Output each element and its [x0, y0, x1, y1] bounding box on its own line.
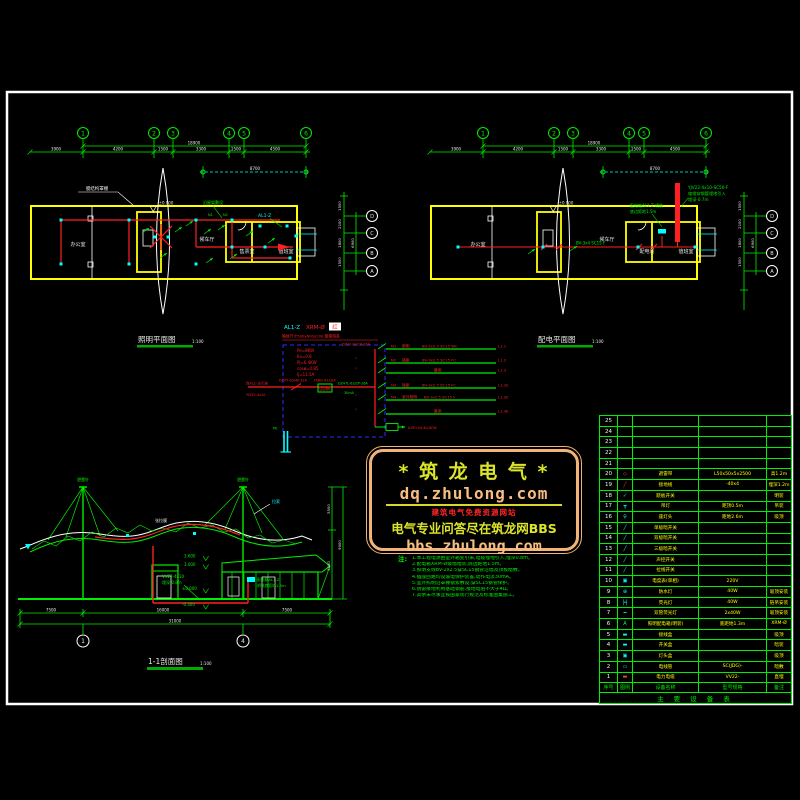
feeder-label: BV-3x4 SC15 F	[576, 241, 606, 246]
svg-text:8700: 8700	[650, 166, 661, 171]
grid-lines	[428, 139, 711, 158]
row-name: 灯头盒	[633, 651, 699, 662]
main-breaker-label: DZ47-63/4P-32A	[279, 379, 308, 383]
row-number: 18	[600, 491, 618, 502]
svg-text:4: 4	[627, 130, 631, 137]
row-name: 电线管	[633, 662, 699, 673]
row-name: 单极暗开关	[633, 523, 699, 534]
svg-text:〃: 〃	[354, 408, 357, 412]
svg-text:B: B	[370, 251, 374, 257]
svg-text:±0.000: ±0.000	[159, 201, 174, 206]
side-dimension-chain: D C B A 1500 2100 1800 1500 6900	[337, 192, 378, 310]
row-name: 接地线	[633, 480, 699, 491]
row-spec: 底距地1.3m	[699, 619, 767, 630]
svg-text:配电箱AL1-Z 明装: 配电箱AL1-Z 明装	[630, 202, 663, 208]
row-number: 2	[600, 662, 618, 673]
row-number: 11	[600, 566, 618, 577]
branch-circuit-texts: N1 照明 BV-2x2.5 SC15 WC L1.1 N2 插座 BV-3x2…	[391, 344, 509, 414]
svg-text:DZ47L-63/2P-16A: DZ47L-63/2P-16A	[338, 381, 368, 385]
panel-tag: AL1-Z	[258, 213, 271, 219]
svg-text:1: 1	[81, 638, 85, 645]
header-name: 设备名称	[633, 683, 699, 693]
row-remark: 吸顶安装	[767, 587, 791, 598]
row-remark: 吸顶	[767, 651, 791, 662]
svg-text:1500: 1500	[158, 147, 169, 152]
row-number: 16	[600, 512, 618, 523]
row-number: 4	[600, 640, 618, 651]
row-spec	[699, 651, 767, 662]
row-name: 拉线开关	[633, 566, 699, 577]
right-dimensions: 5500 3500 9000	[326, 487, 347, 599]
svg-text:候车厅: 候车厅	[199, 236, 214, 243]
svg-text:插座: 插座	[402, 383, 410, 388]
row-spec: 40W	[699, 587, 767, 598]
row-symbol-icon: ╱	[618, 566, 633, 577]
svg-text:cosø=0.85: cosø=0.85	[297, 366, 319, 371]
svg-text:BV-3x2.5 SC15 F: BV-3x2.5 SC15 F	[424, 395, 455, 400]
row-symbol-icon	[618, 416, 633, 427]
row-symbol-icon: ▣	[618, 651, 633, 662]
row-remark	[767, 566, 791, 577]
row-spec: 距地2.6m	[699, 512, 767, 523]
canopy-label: 张拉膜	[155, 517, 167, 523]
svg-text:1500: 1500	[337, 201, 342, 211]
row-number: 6	[600, 619, 618, 630]
svg-text:L1.1: L1.1	[498, 344, 507, 349]
row-remark	[767, 534, 791, 545]
row-spec	[699, 640, 767, 651]
cable-annotation: YJV22-4x10-SC50-F 电缆穿钢管埋地引入 埋深-0.7m	[687, 185, 729, 203]
svg-text:1: 1	[81, 130, 85, 137]
row-spec: 2x40W	[699, 608, 767, 619]
row-name: 双管荧光灯	[633, 608, 699, 619]
watermark-title: * 筑 龙 电 气 *	[372, 457, 576, 484]
svg-text:底边距地1.5m: 底边距地1.5m	[630, 208, 656, 214]
svg-text:9000: 9000	[337, 540, 342, 550]
svg-text:1500: 1500	[631, 147, 642, 152]
svg-text:4200: 4200	[513, 147, 524, 152]
power-plan: 1 2 3 4 5 6 3900 4200 1500 3300 1500 450…	[428, 128, 778, 348]
row-number: 22	[600, 448, 618, 459]
header-symbol: 图例	[618, 683, 633, 693]
svg-text:办公室: 办公室	[70, 241, 85, 248]
secondary-dimension: 8700	[600, 166, 708, 178]
row-symbol-icon: ▬	[618, 640, 633, 651]
watermark-subtitle: 建筑电气免费资源网站	[372, 507, 576, 518]
row-symbol-icon: ◇	[618, 469, 633, 480]
svg-text:6: 6	[304, 130, 308, 137]
row-remark: 埋深1.2m	[767, 480, 791, 491]
row-remark	[767, 437, 791, 448]
row-remark: 暗敷	[767, 662, 791, 673]
svg-text:D: D	[770, 214, 774, 220]
row-spec: 220V	[699, 576, 767, 587]
equipment-table: 25 24 23 22	[599, 415, 792, 704]
svg-text:室外照明: 室外照明	[402, 395, 417, 400]
row-number: 3	[600, 651, 618, 662]
row-number: 7	[600, 608, 618, 619]
svg-text:16000: 16000	[157, 608, 170, 613]
row-remark: 高1.2m	[767, 469, 791, 480]
row-remark	[767, 523, 791, 534]
row-symbol-icon: ━	[618, 608, 633, 619]
row-symbol-icon: ╱	[618, 480, 633, 491]
svg-text:18900: 18900	[588, 141, 601, 146]
svg-text:BV-3x2.5 SC15 FC: BV-3x2.5 SC15 FC	[422, 358, 456, 363]
plan-title: 配电平面图 1:100	[537, 334, 604, 348]
row-number: 10	[600, 576, 618, 587]
row-remark	[767, 544, 791, 555]
svg-text:7500: 7500	[282, 608, 293, 613]
room-labels: 办公室 候车厅 售票室 值班室	[70, 236, 293, 255]
svg-text:B: B	[770, 251, 774, 257]
svg-text:1500: 1500	[737, 257, 742, 267]
row-name: 荧光灯	[633, 598, 699, 609]
svg-text:配电平面图: 配电平面图	[538, 334, 576, 344]
buried-cable-note: VV22-4x10 埋深-0.8m	[162, 574, 184, 585]
svg-text:1500: 1500	[737, 201, 742, 211]
svg-text:8700: 8700	[250, 166, 261, 171]
header-remark: 备注	[767, 683, 791, 693]
svg-text:1800: 1800	[337, 238, 342, 248]
row-name: 电力电缆	[633, 673, 699, 684]
row-name	[633, 437, 699, 448]
svg-text:L1.3: L1.3	[498, 368, 507, 373]
row-name: 声控开关	[633, 555, 699, 566]
row-symbol-icon: ╞╡	[618, 598, 633, 609]
row-remark: 吸顶安装	[767, 608, 791, 619]
svg-text:5500: 5500	[326, 504, 331, 514]
row-spec	[699, 448, 767, 459]
panel-id: AL1-Z	[284, 325, 300, 331]
svg-text:N2: N2	[391, 358, 397, 363]
row-symbol-icon: ▭	[618, 662, 633, 673]
svg-text:DD86: DD86	[319, 386, 331, 391]
watermark-url-bottom: bbs.zhulong.com	[372, 537, 576, 555]
row-name: 双极暗开关	[633, 534, 699, 545]
row-name: 三极暗开关	[633, 544, 699, 555]
equipment-table-body: 25 24 23 22	[600, 416, 791, 683]
row-spec	[699, 544, 767, 555]
row-remark: 直埋	[767, 673, 791, 684]
row-spec: -40x4	[699, 480, 767, 491]
sculpture-outline	[557, 168, 570, 314]
row-symbol-icon: ▣	[618, 576, 633, 587]
panel-model: XRM-Ø	[306, 324, 325, 331]
row-spec	[699, 437, 767, 448]
row-number: 5	[600, 630, 618, 641]
svg-text:电缆穿钢管埋地引入: 电缆穿钢管埋地引入	[688, 190, 727, 197]
row-symbol-icon: ╱	[618, 544, 633, 555]
bottom-dimensions: 7500 16000 7500 31000	[18, 608, 333, 629]
meter-label: FDBo-63(3)A	[314, 379, 336, 383]
row-symbol-icon: ▬	[618, 630, 633, 641]
svg-text:备用: 备用	[434, 368, 442, 373]
svg-text:6900: 6900	[350, 238, 355, 248]
svg-text:〃: 〃	[354, 357, 357, 361]
row-number: 17	[600, 502, 618, 513]
svg-text:4500: 4500	[270, 147, 281, 152]
svg-text:7500: 7500	[46, 608, 57, 613]
svg-text:6900: 6900	[750, 238, 755, 248]
row-symbol-icon: ▬	[618, 673, 633, 684]
svg-text:L1.3E: L1.3E	[498, 409, 509, 414]
svg-text:PE: PE	[273, 426, 278, 431]
row-spec	[699, 523, 767, 534]
svg-text:Kx=0.8: Kx=0.8	[297, 354, 312, 359]
row-remark	[767, 416, 791, 427]
secondary-dimension: 8700	[200, 166, 308, 178]
row-name: 避雷带	[633, 469, 699, 480]
row-spec	[699, 459, 767, 470]
svg-text:4500: 4500	[670, 147, 681, 152]
svg-text:3500: 3500	[326, 561, 331, 571]
svg-text:配电箱AL1-Z: 配电箱AL1-Z	[257, 577, 280, 582]
svg-text:±0.000: ±0.000	[559, 201, 574, 206]
grid-bubbles: 1 2 3 4 5 6	[78, 128, 312, 139]
branch-breaker-labels: DZ47-63/1P-16A 〃 〃 DZ47L-63/2P-16A 30mA …	[338, 343, 371, 412]
svg-text:3300: 3300	[196, 147, 207, 152]
svg-text:N2: N2	[223, 213, 228, 217]
lighting-plan: 1 2 3 4 5 6 3900 4200 1500 3300 1500 450…	[28, 128, 378, 348]
svg-text:售票室: 售票室	[239, 248, 254, 255]
svg-text:4: 4	[241, 638, 245, 645]
row-spec	[699, 555, 767, 566]
svg-text:N4: N4	[391, 395, 397, 400]
roof-note: 膜结构罩棚	[86, 185, 109, 192]
row-remark: 吊装	[767, 502, 791, 513]
roof-note-leader	[78, 192, 133, 205]
svg-text:2100: 2100	[737, 219, 742, 229]
plan-title: 照明平面图 1:100	[137, 335, 204, 348]
row-remark	[767, 427, 791, 438]
row-number: 15	[600, 523, 618, 534]
power-wiring: BV-3x4 SC15 F YJV22-4x10-SC50-F 电缆穿钢管埋地引…	[457, 183, 729, 254]
svg-text:〃: 〃	[354, 394, 357, 398]
lighting-wiring: 沿屋架敷设 AL1-Z N1 N2	[60, 199, 298, 266]
svg-text:VV22-4x10: VV22-4x10	[162, 574, 184, 579]
svg-text:2: 2	[552, 130, 556, 137]
mast-label-right: 避雷针	[237, 476, 249, 482]
svg-text:31000: 31000	[169, 619, 182, 624]
row-remark	[767, 459, 791, 470]
row-number: 20	[600, 469, 618, 480]
surge-protector: JLSP-U/4-40/4CW	[375, 424, 437, 431]
svg-text:照明平面图: 照明平面图	[138, 335, 176, 344]
svg-text:A: A	[770, 269, 774, 275]
row-remark: 明装	[767, 491, 791, 502]
row-number: 13	[600, 544, 618, 555]
row-number: 23	[600, 437, 618, 448]
svg-text:BV-2x2.5 SC15 WC: BV-2x2.5 SC15 WC	[422, 344, 458, 349]
row-symbol-icon: ♀	[618, 512, 633, 523]
incoming-source: 自AL2-1b引来	[246, 381, 269, 386]
svg-text:埋深-0.7m: 埋深-0.7m	[688, 196, 709, 203]
svg-text:N1: N1	[391, 344, 397, 349]
zhulong-watermark: * 筑 龙 电 气 * dq.zhulong.com 建筑电气免费资源网站 电气…	[369, 449, 579, 551]
watermark-tagline: 电气专业问答尽在筑龙网BBS	[372, 518, 576, 537]
svg-text:2: 2	[152, 130, 156, 137]
svg-text:D: D	[370, 214, 374, 220]
svg-text:L1.2: L1.2	[498, 358, 507, 363]
svg-text:1500: 1500	[337, 257, 342, 267]
row-name: 开关盒	[633, 640, 699, 651]
room-labels: 办公室 候车厅 配电间 值班室	[470, 236, 693, 255]
distribution-schematic: AL1-Z XRM-Ø 红 箱体尺寸500x600x200 嵌墙暗装 Pe=8K…	[246, 323, 509, 453]
row-spec: L50x50x5x2500	[699, 469, 767, 480]
row-number: 1	[600, 673, 618, 684]
row-name: 照明配电箱(明装)	[633, 619, 699, 630]
grid-bubbles: 1 2 3 4 5 6	[478, 128, 712, 139]
svg-text:1-1剖面图: 1-1剖面图	[148, 656, 183, 666]
svg-text:2100: 2100	[337, 219, 342, 229]
svg-text:-0.300: -0.300	[182, 602, 195, 607]
row-remark	[767, 555, 791, 566]
row-number: 19	[600, 480, 618, 491]
svg-text:Pe=8KW: Pe=8KW	[297, 348, 314, 353]
row-symbol-icon: A	[618, 619, 633, 630]
panel-note-elevation: 配电箱AL1-Z 明装底距地1.5m	[257, 577, 286, 588]
watermark-divider	[386, 504, 562, 506]
incoming-cable: YJV22-4x10	[246, 393, 265, 397]
svg-text:3900: 3900	[51, 147, 62, 152]
svg-text:插座: 插座	[402, 358, 410, 363]
svg-text:3: 3	[571, 130, 575, 137]
row-spec: 距顶0.5m	[699, 502, 767, 513]
svg-text:JLSP-U/4-40/4CW: JLSP-U/4-40/4CW	[407, 426, 437, 430]
elevation-title: 1-1剖面图 1:100	[147, 656, 212, 670]
row-remark: 吸顶	[767, 630, 791, 641]
row-name	[633, 427, 699, 438]
row-symbol-icon: ╱	[618, 534, 633, 545]
svg-text:值班室: 值班室	[678, 248, 693, 255]
row-symbol-icon	[618, 427, 633, 438]
wire-note: 沿屋架敷设	[203, 199, 223, 205]
svg-text:3900: 3900	[451, 147, 462, 152]
row-remark: 吸顶	[767, 512, 791, 523]
svg-text:N3: N3	[391, 383, 397, 388]
row-spec: 40W	[699, 598, 767, 609]
notes-list: 1.本工程电源由室外箱变引来,电缆埋地引入,埋深0.8m。 2.配电箱XRM-Ø…	[412, 556, 590, 599]
svg-text:5: 5	[242, 130, 246, 137]
row-number: 12	[600, 555, 618, 566]
svg-text:1:100: 1:100	[592, 339, 604, 344]
svg-text:备用: 备用	[434, 409, 442, 414]
mast-label-left: 避雷针	[77, 476, 89, 482]
cable-label: 拉索	[272, 498, 280, 504]
elevation-grid-bubbles: 1 4	[77, 624, 249, 647]
row-number: 9	[600, 587, 618, 598]
svg-text:Pj=6.4KW: Pj=6.4KW	[297, 360, 317, 365]
row-symbol-icon: ⊕	[618, 587, 633, 598]
general-notes: 注: 1.本工程电源由室外箱变引来,电缆埋地引入,埋深0.8m。 2.配电箱XR…	[412, 556, 590, 599]
svg-text:3.000: 3.000	[184, 562, 196, 567]
row-spec: SC(JDG)-	[699, 662, 767, 673]
svg-text:4200: 4200	[113, 147, 124, 152]
header-spec: 型号规格	[699, 683, 767, 693]
row-name: 电度表(单相)	[633, 576, 699, 587]
svg-text:1:100: 1:100	[200, 661, 212, 666]
cad-drawing-canvas: 1 2 3 4 5 6 3900 4200 1500 3300 1500 450…	[0, 0, 800, 800]
svg-text:1500: 1500	[558, 147, 569, 152]
header-no: 序号	[600, 683, 618, 693]
row-remark: 暗装	[767, 640, 791, 651]
svg-text:1: 1	[481, 130, 485, 137]
svg-text:1:100: 1:100	[192, 339, 204, 344]
svg-text:〃: 〃	[354, 367, 357, 371]
svg-text:3: 3	[171, 130, 175, 137]
svg-text:BV-3x2.5 SC15 FC: BV-3x2.5 SC15 FC	[422, 383, 456, 388]
row-remark	[767, 576, 791, 587]
row-name: 跷板开关	[633, 491, 699, 502]
row-symbol-icon: ╱	[618, 523, 633, 534]
row-number: 25	[600, 416, 618, 427]
svg-text:Ij=11.5A: Ij=11.5A	[297, 372, 315, 377]
svg-text:18900: 18900	[188, 141, 201, 146]
watermark-url-top: dq.zhulong.com	[372, 484, 576, 503]
equipment-table-header: 序号 图例 设备名称 型号规格 备注	[600, 683, 791, 693]
row-name: 吊灯	[633, 502, 699, 513]
svg-text:6: 6	[704, 130, 708, 137]
row-name: 座灯头	[633, 512, 699, 523]
grid-lines	[28, 139, 311, 158]
row-symbol-icon	[618, 459, 633, 470]
svg-text:1500: 1500	[231, 147, 242, 152]
section-elevation: 避雷针 避雷针 拉索 张拉膜 3.600 3.000 ±0.000 -0.300…	[18, 476, 348, 670]
panel-box	[658, 229, 666, 234]
row-name	[633, 448, 699, 459]
svg-text:明装底距地1.5m: 明装底距地1.5m	[257, 583, 286, 588]
row-remark: 链吊安装	[767, 598, 791, 609]
svg-text:C: C	[370, 231, 374, 237]
svg-text:YJV22-4x10-SC50-F: YJV22-4x10-SC50-F	[687, 185, 729, 190]
level-marks: 3.600 3.000 ±0.000 -0.300	[182, 554, 209, 610]
pe-ground: PE	[273, 426, 291, 453]
svg-text:C: C	[770, 231, 774, 237]
svg-text:1800: 1800	[737, 238, 742, 248]
row-number: 8	[600, 598, 618, 609]
svg-text:埋深-0.8m: 埋深-0.8m	[162, 579, 182, 585]
row-number: 14	[600, 534, 618, 545]
panel-annotation: 配电箱AL1-Z 明装 底边距地1.5m	[630, 202, 663, 214]
row-spec	[699, 427, 767, 438]
sculpture-outline	[157, 168, 170, 314]
equipment-table-title: 主 要 设 备 表	[600, 693, 791, 704]
svg-text:4: 4	[227, 130, 231, 137]
svg-text:A: A	[370, 269, 374, 275]
svg-text:N1: N1	[208, 213, 213, 217]
row-symbol-icon: ✓	[618, 491, 633, 502]
side-dimension-chain: D C B A 1500 2100 1800 1500 6900	[737, 192, 778, 310]
svg-text:5: 5	[642, 130, 646, 137]
load-parameters: Pe=8KW Kx=0.8 Pj=6.4KW cosø=0.85 Ij=11.5…	[297, 348, 319, 377]
row-symbol-icon	[618, 448, 633, 459]
row-spec	[699, 416, 767, 427]
row-number: 21	[600, 459, 618, 470]
canopy-top-curve	[20, 521, 312, 549]
row-spec	[699, 534, 767, 545]
row-remark	[767, 448, 791, 459]
incoming-cable-riser	[675, 183, 680, 242]
svg-text:3.600: 3.600	[184, 554, 196, 559]
row-spec	[699, 566, 767, 577]
row-remark: XRM-Ø	[767, 619, 791, 630]
svg-text:3300: 3300	[596, 147, 607, 152]
svg-text:照明: 照明	[402, 344, 410, 349]
notes-label: 注:	[398, 556, 407, 562]
panel-box-elevation	[247, 577, 255, 582]
box-note: 箱体尺寸500x600x200 嵌墙暗装	[282, 334, 340, 339]
